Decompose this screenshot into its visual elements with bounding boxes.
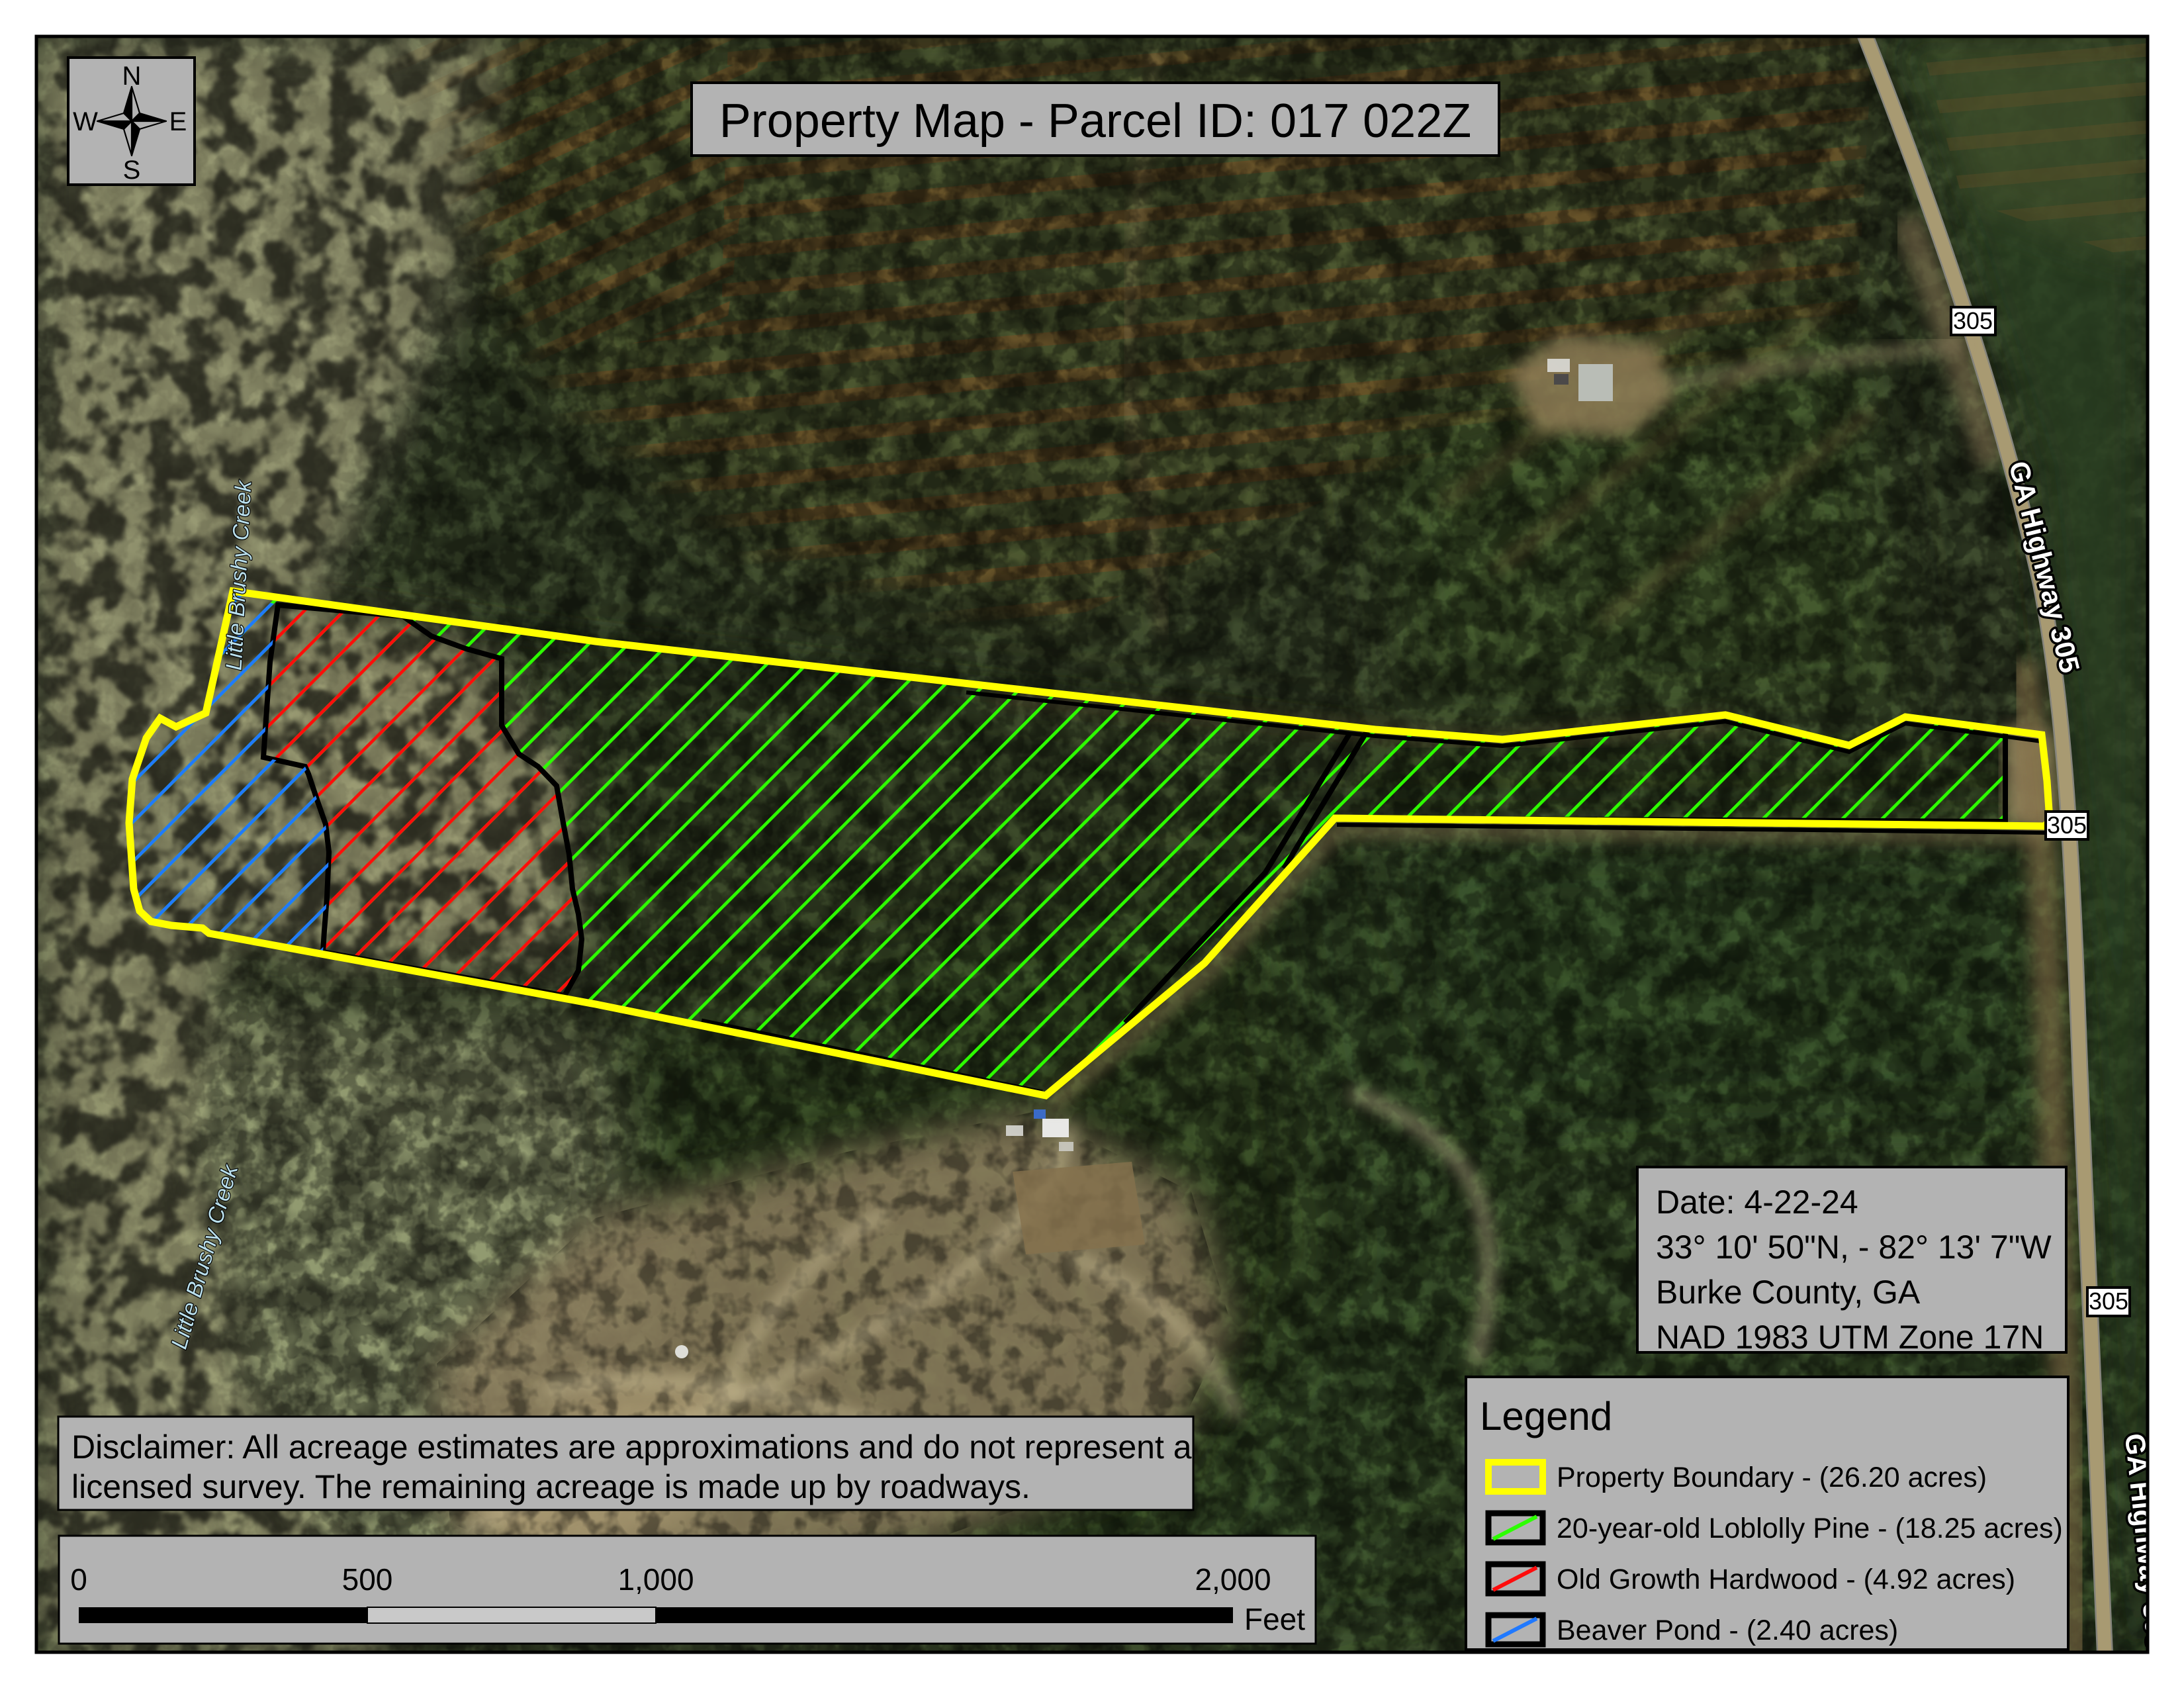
svg-text:Legend: Legend — [1480, 1394, 1612, 1438]
svg-text:305: 305 — [2089, 1288, 2128, 1315]
svg-text:1,000: 1,000 — [617, 1562, 694, 1597]
svg-text:Burke County, GA: Burke County, GA — [1656, 1274, 1921, 1311]
svg-text:Old Growth Hardwood - (4.92 ac: Old Growth Hardwood - (4.92 acres) — [1557, 1564, 2015, 1595]
svg-text:0: 0 — [70, 1562, 87, 1597]
svg-text:2,000: 2,000 — [1195, 1562, 1271, 1597]
svg-text:Date: 4-22-24: Date: 4-22-24 — [1656, 1184, 1858, 1221]
svg-text:33° 10' 50"N, - 82° 13' 7"W: 33° 10' 50"N, - 82° 13' 7"W — [1656, 1229, 2052, 1266]
svg-text:Property Map - Parcel ID: 017: Property Map - Parcel ID: 017 022Z — [719, 95, 1472, 148]
svg-text:W: W — [73, 107, 98, 136]
svg-text:305: 305 — [1953, 307, 1993, 334]
svg-text:E: E — [169, 107, 187, 136]
svg-text:20-year-old Loblolly Pine - (1: 20-year-old Loblolly Pine - (18.25 acres… — [1557, 1513, 2063, 1544]
svg-text:500: 500 — [342, 1562, 393, 1597]
svg-text:Beaver Pond - (2.40 acres): Beaver Pond - (2.40 acres) — [1557, 1615, 1898, 1646]
svg-text:S: S — [123, 156, 141, 185]
svg-text:NAD 1983 UTM Zone 17N: NAD 1983 UTM Zone 17N — [1656, 1319, 2044, 1356]
svg-text:305: 305 — [2047, 812, 2087, 839]
svg-text:Feet: Feet — [1244, 1602, 1305, 1636]
svg-text:Property Boundary - (26.20 acr: Property Boundary - (26.20 acres) — [1557, 1462, 1987, 1493]
svg-text:Disclaimer: All acreage estima: Disclaimer: All acreage estimates are ap… — [71, 1429, 1192, 1466]
svg-text:licensed survey. The remaining: licensed survey. The remaining acreage i… — [71, 1468, 1030, 1505]
